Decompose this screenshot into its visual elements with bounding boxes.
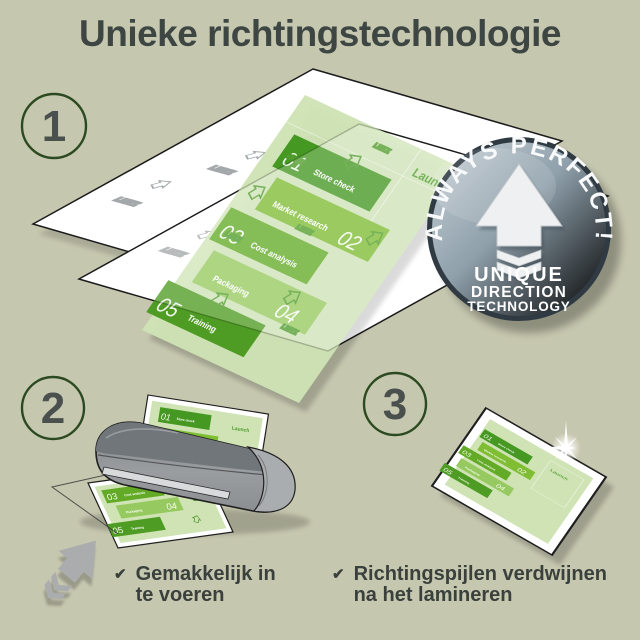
infographic-page: Unieke richtingstechnologie [0,0,640,640]
badge-line3: TECHNOLOGY [467,299,570,314]
check-icon: ✔ [114,564,127,606]
step-2-marker: 2 [22,377,84,439]
always-perfect-badge: ALWAYS PERFECT! UNIQUE DIRECTION [421,132,621,333]
check-icon: ✔ [332,564,345,606]
doc-item-num: 01 [160,411,171,422]
step3-illustration: 3 01 Store check Market research 02 03 C… [364,373,614,565]
caption-text: Gemakkelijk in te voeren [136,564,276,606]
badge-line1: UNIQUE [474,264,564,286]
illustration-canvas: LEITZ LEITZ LEITZ LEITZ LEITZ LEITZ LEIT… [0,0,640,640]
caption-text: Richtingspijlen verdwijnen na het lamine… [354,564,607,606]
caption-line: te voeren [136,585,276,606]
caption-line: Gemakkelijk in [136,564,276,585]
caption-line: Richtingspijlen verdwijnen [354,564,607,585]
step-3-marker: 3 [364,373,426,435]
step-number: 2 [41,384,65,433]
caption-easy-feed: ✔ Gemakkelijk in te voeren [114,564,276,606]
caption-line: na het lamineren [354,585,607,606]
caption-arrows-disappear: ✔ Richtingspijlen verdwijnen na het lami… [332,564,607,606]
step-number: 3 [383,380,407,429]
feed-arrow-icon [27,526,116,619]
step-number: 1 [42,102,66,151]
step1-illustration: LEITZ LEITZ LEITZ LEITZ LEITZ LEITZ LEIT… [22,69,621,412]
step-1-marker: 1 [22,94,86,158]
